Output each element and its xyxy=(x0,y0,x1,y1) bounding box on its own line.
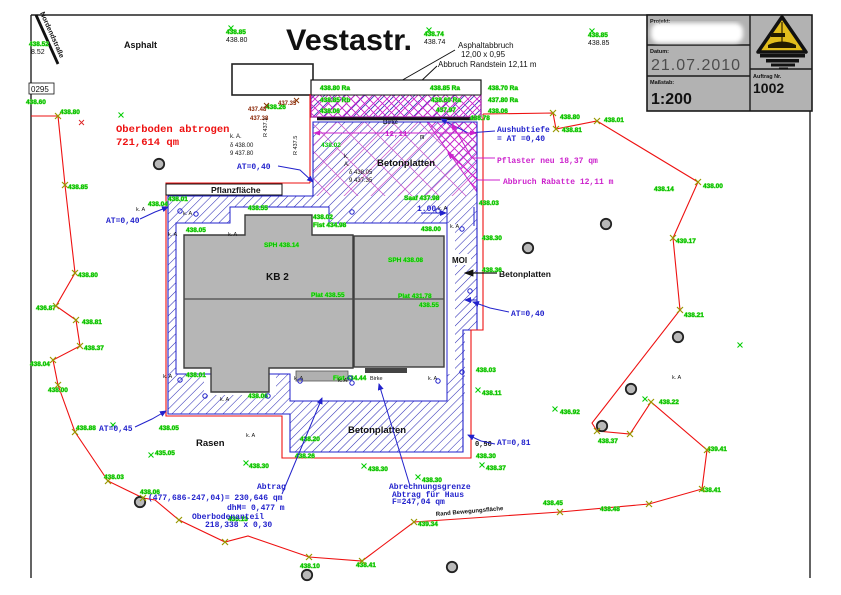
svg-text:F=247,04 qm: F=247,04 qm xyxy=(392,498,445,507)
svg-text:438.20: 438.20 xyxy=(300,436,320,443)
svg-text:438.03: 438.03 xyxy=(476,367,496,374)
svg-text:Plat 438.55: Plat 438.55 xyxy=(311,292,345,299)
svg-text:R 437.1: R 437.1 xyxy=(263,118,269,137)
svg-text:k. A: k. A xyxy=(168,232,178,238)
svg-text:(477,686-247,04)= 230,646 qm: (477,686-247,04)= 230,646 qm xyxy=(148,494,283,503)
svg-text:438.30: 438.30 xyxy=(249,463,269,470)
svg-text:KB 2: KB 2 xyxy=(266,272,289,283)
svg-text:438.85: 438.85 xyxy=(588,40,610,47)
svg-text:438.37: 438.37 xyxy=(598,438,618,445)
svg-text:k. A: k. A xyxy=(246,433,256,439)
svg-text:438.85 Rb: 438.85 Rb xyxy=(320,97,350,104)
svg-text:δ 438.05: δ 438.05 xyxy=(349,170,373,176)
svg-text:δ 438.00: δ 438.00 xyxy=(230,143,254,149)
svg-text:Rasen: Rasen xyxy=(196,438,225,449)
svg-text:438.30: 438.30 xyxy=(482,235,502,242)
svg-text:438.41: 438.41 xyxy=(356,562,376,569)
svg-text:12,11: 12,11 xyxy=(385,131,408,139)
svg-text:AT=0,40: AT=0,40 xyxy=(511,310,545,319)
svg-text:439.17: 439.17 xyxy=(676,238,696,245)
svg-text:k. A: k. A xyxy=(136,207,146,213)
svg-text:Betonplatten: Betonplatten xyxy=(377,158,435,169)
svg-text:438.02: 438.02 xyxy=(321,142,341,149)
svg-text:438.00: 438.00 xyxy=(421,226,441,233)
svg-text:Abbruch Rabatte 12,11 m: Abbruch Rabatte 12,11 m xyxy=(503,178,614,187)
svg-text:k. A: k. A xyxy=(163,374,173,380)
svg-text:438.00: 438.00 xyxy=(48,387,68,394)
svg-text:AT=0,40: AT=0,40 xyxy=(106,217,140,226)
svg-text:438.22: 438.22 xyxy=(659,399,679,406)
svg-text:Vestastr.: Vestastr. xyxy=(286,24,412,57)
svg-text:438.85: 438.85 xyxy=(68,184,88,191)
svg-text:k. A: k. A xyxy=(672,375,682,381)
svg-text:438.14: 438.14 xyxy=(654,186,674,193)
svg-text:9 437.35: 9 437.35 xyxy=(349,178,373,184)
svg-text:437.35: 437.35 xyxy=(278,101,297,107)
svg-text:1:200: 1:200 xyxy=(651,91,692,108)
svg-text:MOI: MOI xyxy=(452,256,467,265)
svg-text:SPH 438.14: SPH 438.14 xyxy=(264,242,299,249)
svg-text:Betonplatten: Betonplatten xyxy=(499,269,551,279)
svg-text:439.34: 439.34 xyxy=(418,521,438,528)
svg-text:12,00 x 0,95: 12,00 x 0,95 xyxy=(461,50,506,59)
svg-text:AT=0,81: AT=0,81 xyxy=(497,439,531,448)
svg-text:438.85 Ra: 438.85 Ra xyxy=(430,85,460,92)
svg-text:438.52: 438.52 xyxy=(29,41,49,48)
svg-text:438.81: 438.81 xyxy=(82,319,102,326)
svg-text:438.74: 438.74 xyxy=(424,39,446,46)
svg-text:438.70 Ra: 438.70 Ra xyxy=(488,85,518,92)
svg-text:Birke: Birke xyxy=(370,376,383,382)
svg-text:Abtrag: Abtrag xyxy=(257,483,286,492)
svg-text:438.04: 438.04 xyxy=(148,201,168,208)
svg-text:Plat 431.78: Plat 431.78 xyxy=(398,293,432,300)
svg-text:SPH 438.08: SPH 438.08 xyxy=(388,257,423,264)
svg-text:Aushubtiefe: Aushubtiefe xyxy=(497,126,550,135)
svg-text:438.80: 438.80 xyxy=(560,114,580,121)
svg-text:Pflanzfläche: Pflanzfläche xyxy=(211,185,261,195)
svg-text:438.03: 438.03 xyxy=(479,200,499,207)
svg-text:438.81: 438.81 xyxy=(562,127,582,134)
svg-text:438.80: 438.80 xyxy=(226,37,248,44)
svg-text:A.: A. xyxy=(344,162,350,168)
svg-text:437.97: 437.97 xyxy=(436,107,456,114)
svg-text:m: m xyxy=(420,134,424,142)
svg-text:438.80: 438.80 xyxy=(60,109,80,116)
svg-text:AT=0,40: AT=0,40 xyxy=(237,163,271,172)
svg-text:438.80 Ra: 438.80 Ra xyxy=(320,85,350,92)
svg-text:436.92: 436.92 xyxy=(560,409,580,416)
svg-text:k. A.: k. A. xyxy=(230,134,242,140)
svg-text:438.78: 438.78 xyxy=(470,115,490,122)
svg-text:Asphaltabbruch: Asphaltabbruch xyxy=(458,41,514,50)
svg-text:8.52: 8.52 xyxy=(31,49,45,56)
svg-text:438.06: 438.06 xyxy=(320,108,340,115)
svg-text:438.30: 438.30 xyxy=(476,453,496,460)
svg-text:438.80: 438.80 xyxy=(78,272,98,279)
svg-text:438.01: 438.01 xyxy=(168,196,188,203)
svg-text:438.02: 438.02 xyxy=(313,214,333,221)
svg-text:438.06: 438.06 xyxy=(488,108,508,115)
svg-text:435.05: 435.05 xyxy=(155,450,175,457)
svg-text:438.05: 438.05 xyxy=(159,425,179,432)
svg-text:438.06: 438.06 xyxy=(248,393,268,400)
svg-text:438.37: 438.37 xyxy=(84,345,104,352)
svg-text:438.60: 438.60 xyxy=(26,99,46,106)
svg-text:437.80 Ra: 437.80 Ra xyxy=(488,97,518,104)
svg-text:438.88: 438.88 xyxy=(76,425,96,432)
svg-text:21.07.2010: 21.07.2010 xyxy=(651,57,741,74)
svg-text:218,338 x 0,30: 218,338 x 0,30 xyxy=(205,521,272,530)
svg-text:k. A: k. A xyxy=(220,397,230,403)
svg-text:438.10: 438.10 xyxy=(300,563,320,570)
svg-text:Betonplatten: Betonplatten xyxy=(348,425,406,436)
svg-text:R 437.5: R 437.5 xyxy=(293,136,299,155)
svg-text:438.48: 438.48 xyxy=(600,506,620,513)
svg-text:438.30: 438.30 xyxy=(368,466,388,473)
svg-text:Saaf 437.98: Saaf 437.98 xyxy=(404,195,440,202)
svg-text:438.04: 438.04 xyxy=(30,361,50,368)
svg-text:438.21: 438.21 xyxy=(684,312,704,319)
svg-text:AT=0,45: AT=0,45 xyxy=(99,425,133,434)
svg-text:0,50: 0,50 xyxy=(475,441,492,449)
svg-text:438.01: 438.01 xyxy=(604,117,624,124)
svg-text:438.01: 438.01 xyxy=(186,372,206,379)
svg-text:k. A: k. A xyxy=(228,232,238,238)
svg-text:438.00: 438.00 xyxy=(703,183,723,190)
svg-text:0295: 0295 xyxy=(31,85,49,94)
svg-text:438.36: 438.36 xyxy=(482,267,502,274)
svg-text:438.37: 438.37 xyxy=(486,465,506,472)
svg-text:438.11: 438.11 xyxy=(482,390,502,397)
svg-text:438.45: 438.45 xyxy=(543,500,563,507)
svg-text:438.85: 438.85 xyxy=(588,32,608,39)
svg-text:1002: 1002 xyxy=(753,80,784,96)
svg-text:Maßstab:: Maßstab: xyxy=(650,80,674,86)
svg-text:Fist 434.98: Fist 434.98 xyxy=(313,222,347,229)
svg-text:Abbruch Randstein 12,11 m: Abbruch Randstein 12,11 m xyxy=(438,60,537,69)
svg-text:Pflaster neu 18,37 qm: Pflaster neu 18,37 qm xyxy=(497,157,598,166)
svg-text:438.55: 438.55 xyxy=(248,205,268,212)
svg-text:Birke: Birke xyxy=(383,120,399,126)
svg-text:dhM= 0,477 m: dhM= 0,477 m xyxy=(227,504,285,513)
svg-text:Datum:: Datum: xyxy=(650,49,669,55)
svg-text:Asphalt: Asphalt xyxy=(124,40,157,50)
svg-text:721,614 qm: 721,614 qm xyxy=(116,137,179,149)
svg-text:k. A: k. A xyxy=(450,224,460,230)
svg-text:438.05: 438.05 xyxy=(186,227,206,234)
svg-text:k.: k. xyxy=(344,154,349,160)
svg-text:Oberboden abtrogen: Oberboden abtrogen xyxy=(116,124,229,136)
svg-text:k. A: k. A xyxy=(338,378,348,384)
svg-text:= AT =0,40: = AT =0,40 xyxy=(497,135,545,144)
svg-text:9 437.80: 9 437.80 xyxy=(230,151,254,157)
svg-text:438.55: 438.55 xyxy=(419,302,439,309)
svg-text:k. A: k. A xyxy=(183,211,193,217)
svg-text:438.60 Ra: 438.60 Ra xyxy=(431,97,461,104)
